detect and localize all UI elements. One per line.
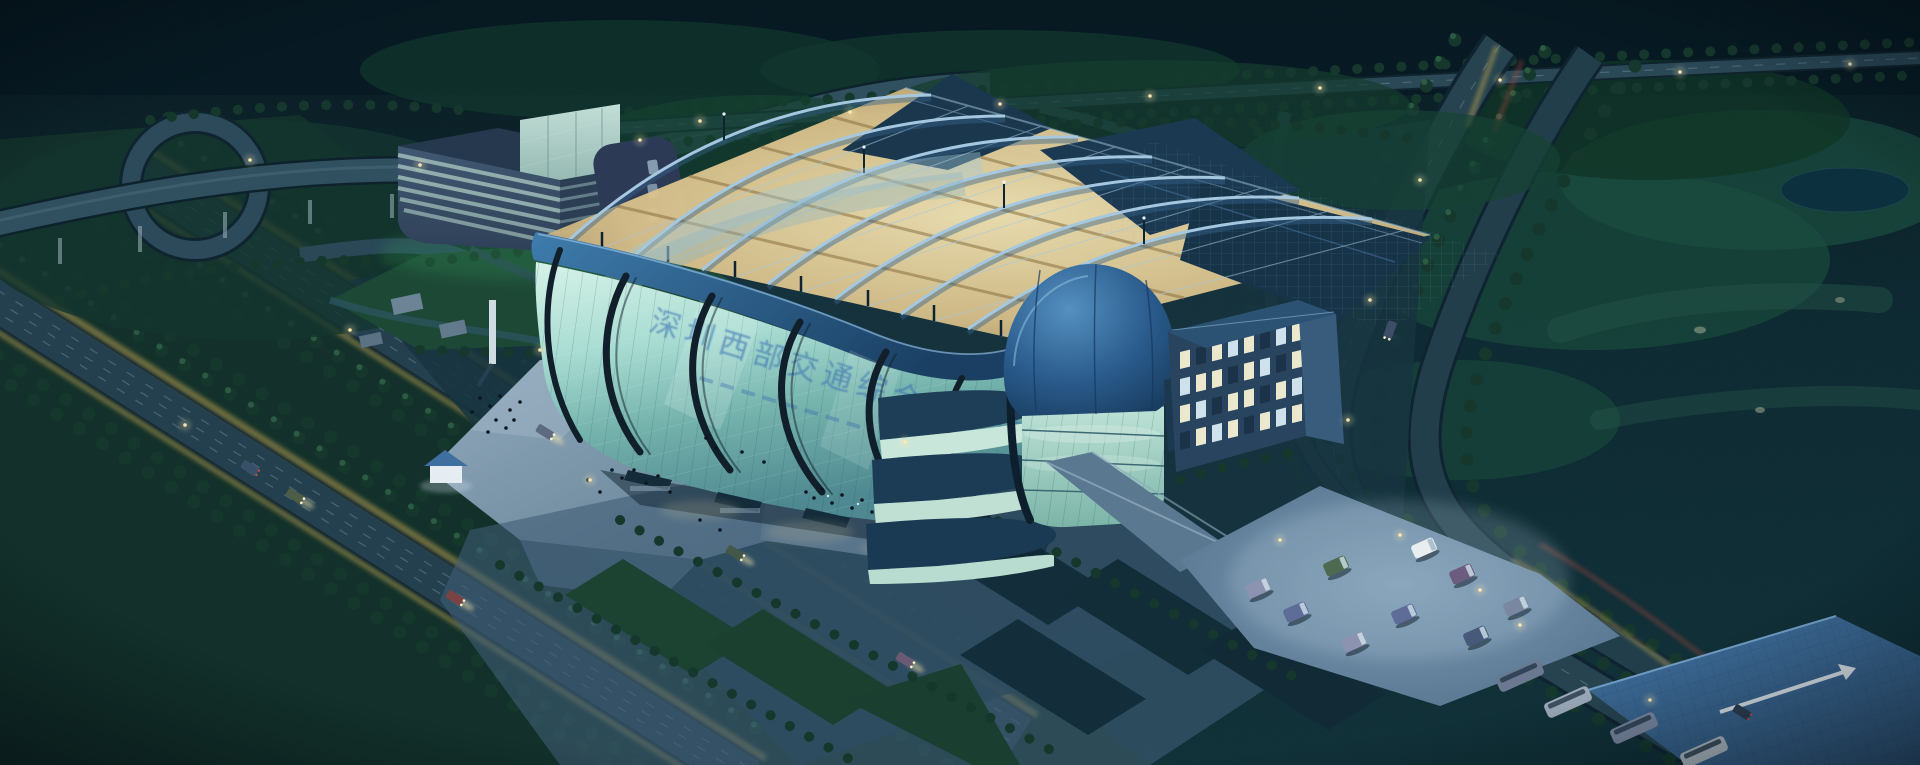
vignette [0, 0, 1920, 765]
rendering-canvas: 深圳西部交通综合枢纽中心 [0, 0, 1920, 765]
architectural-rendering: 深圳西部交通综合枢纽中心 [0, 0, 1920, 765]
